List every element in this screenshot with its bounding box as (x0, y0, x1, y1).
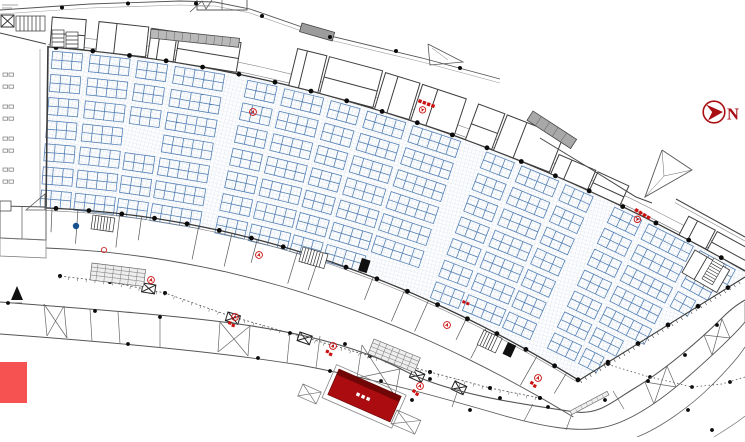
svg-text:N: N (727, 105, 739, 124)
